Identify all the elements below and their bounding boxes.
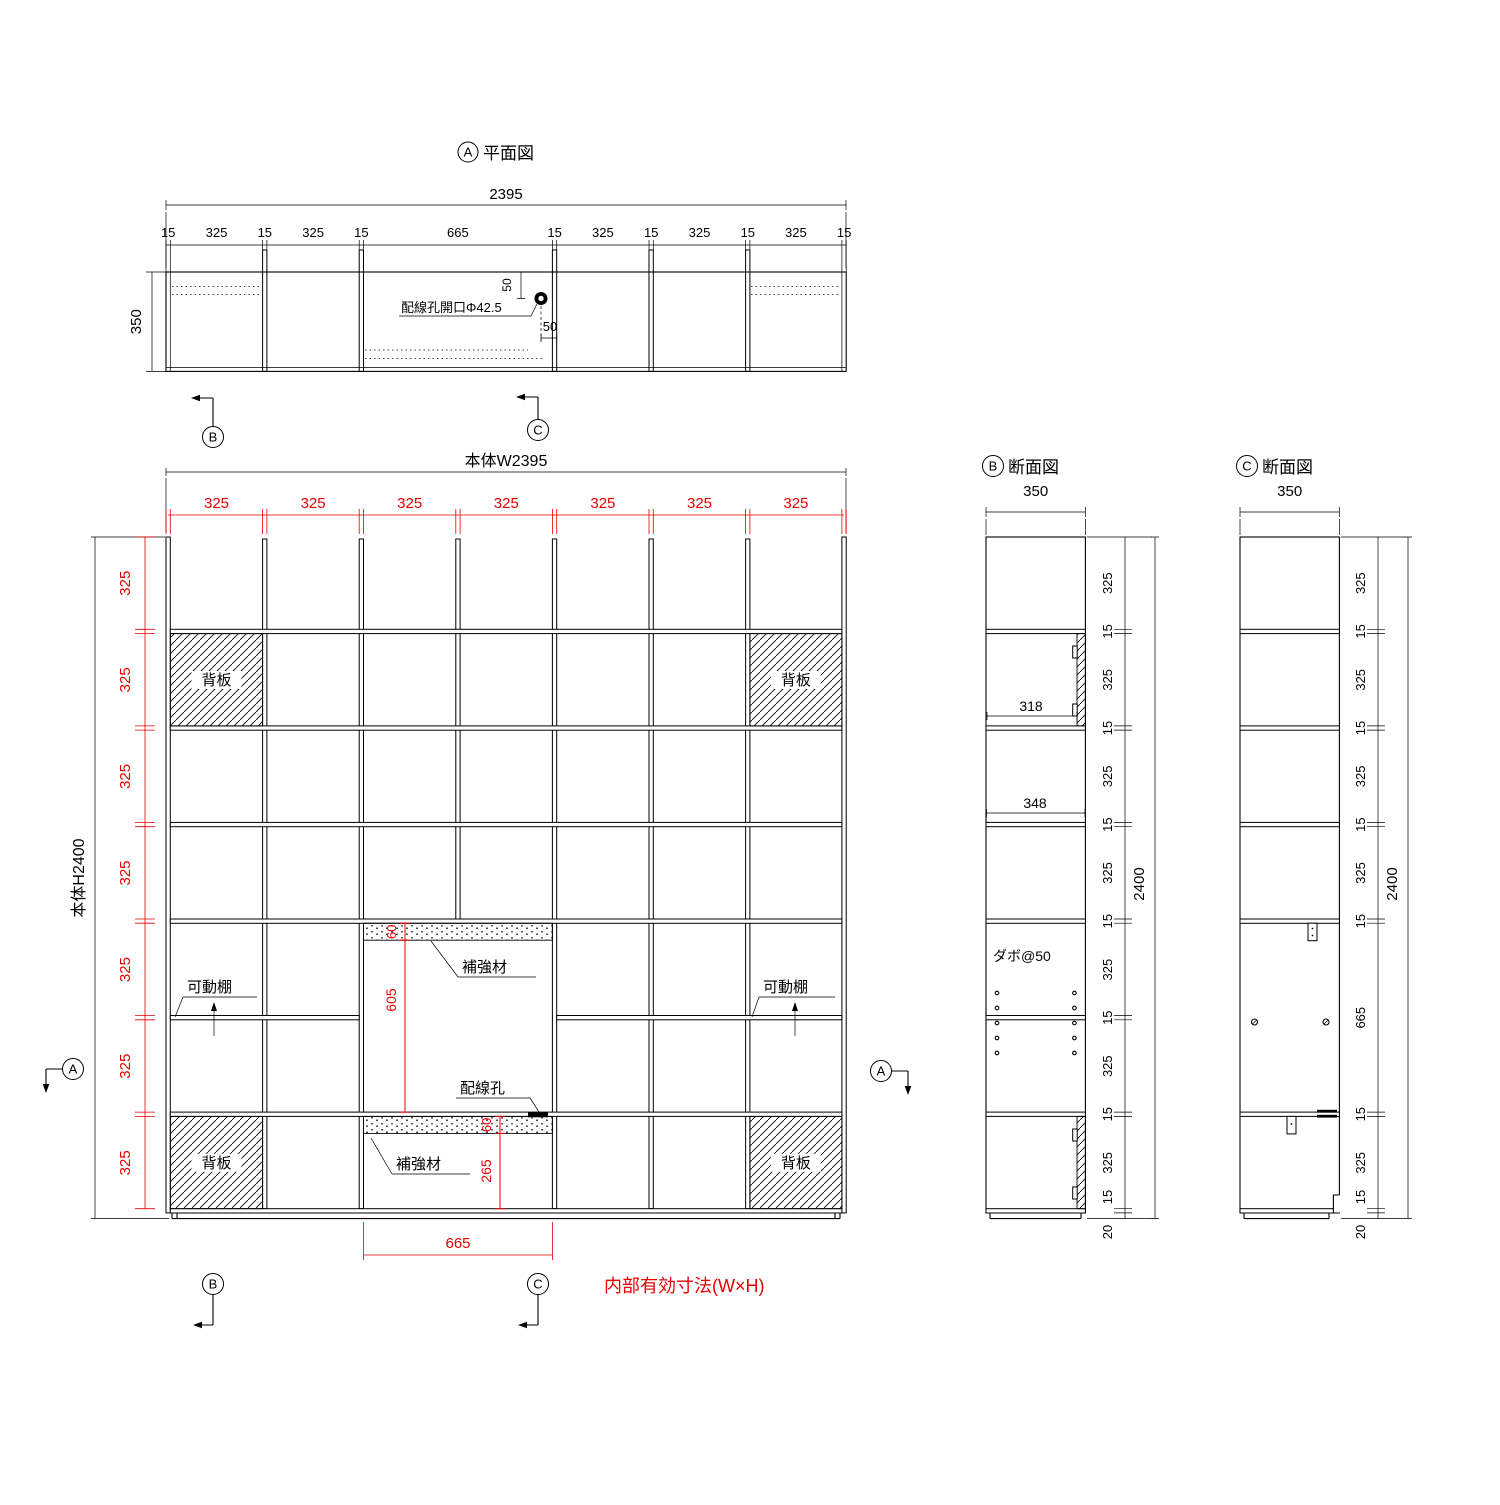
section-b-depth: 350 xyxy=(1023,483,1048,500)
plan-divider xyxy=(552,250,556,371)
plan-chain-dim: 15 xyxy=(354,225,368,240)
chain-dim: 325 xyxy=(1353,669,1368,691)
chain-dim: 15 xyxy=(1100,817,1115,831)
section-c-view: C 断面図 350 325 15 325 15 325 xyxy=(1237,456,1413,1240)
shelf-section xyxy=(986,1112,1085,1116)
movable-shelf-section xyxy=(986,1016,1085,1020)
screw-symbols xyxy=(1252,1019,1330,1025)
shelf-section xyxy=(1240,822,1339,826)
section-marker-line xyxy=(46,1069,63,1085)
chain-dim: 325 xyxy=(1100,1055,1115,1077)
chain-dim: 325 xyxy=(1353,1152,1368,1174)
bottom-clear-dim: 265 xyxy=(478,1159,494,1183)
plan-marker-letter: A xyxy=(464,145,473,160)
section-c-base xyxy=(1244,1213,1329,1219)
shelf-section xyxy=(986,629,1085,633)
divider xyxy=(552,539,556,1209)
section-b-total-dim-line xyxy=(1151,537,1159,1219)
elevation-section-marker-c: C xyxy=(518,1274,549,1329)
plan-chain-dim: 325 xyxy=(206,225,228,240)
elevation-width-label: 本体W2395 xyxy=(465,452,548,470)
plan-chain-dim: 15 xyxy=(547,225,561,240)
plan-chain-dim: 15 xyxy=(161,225,175,240)
bottom-panel-section xyxy=(1240,1209,1339,1213)
plan-section-marker-b: B xyxy=(191,395,224,448)
elevation-height-label: 本体H2400 xyxy=(70,838,88,917)
section-b-body: 318 348 ダボ@50 xyxy=(986,537,1085,1219)
section-c-depth: 350 xyxy=(1277,483,1302,500)
plan-divider xyxy=(746,250,750,371)
back-panel-label: 背板 xyxy=(201,671,231,689)
back-panel-section-hatch xyxy=(1077,634,1085,726)
chain-dim: 20 xyxy=(1353,1225,1368,1239)
chain-dim: 665 xyxy=(1353,1007,1368,1029)
plan-chain-dim: 325 xyxy=(592,225,614,240)
back-panel-label: 背板 xyxy=(781,671,811,689)
movable-shelf-left: 可動棚 xyxy=(175,979,257,1036)
plan-body xyxy=(166,250,846,371)
plan-hidden-reinforcement xyxy=(365,350,545,359)
wiring-hole-cut-icon xyxy=(528,1112,548,1117)
reinforcement-section xyxy=(1308,923,1317,941)
movable-shelf xyxy=(170,1016,359,1020)
plan-view: A 平面図 2395 15 325 15 325 15 665 15 325 1… xyxy=(128,142,851,448)
section-marker-letter: A xyxy=(877,1064,886,1079)
section-arrow-icon xyxy=(43,1084,50,1093)
elevation-body xyxy=(166,537,846,1219)
chain-dim: 15 xyxy=(1353,1190,1368,1204)
section-c-marker-letter: C xyxy=(1242,459,1251,474)
chain-dim: 325 xyxy=(1100,572,1115,594)
wiring-hole-center xyxy=(538,296,543,301)
chain-dim: 325 xyxy=(1100,959,1115,981)
reinforcement-label: 補強材 xyxy=(462,959,507,976)
shelf-section xyxy=(1240,919,1339,923)
reinf-top-dim: 60 xyxy=(384,925,399,939)
section-arrow-icon xyxy=(516,394,525,400)
plan-hole-offset-v: 50 xyxy=(500,278,514,292)
col-dim: 325 xyxy=(204,495,229,512)
chain-dim: 15 xyxy=(1100,914,1115,928)
opening-dim-lines xyxy=(400,923,410,1112)
elevation-row-dims: 325 325 325 325 325 325 325 xyxy=(117,537,155,1209)
cad-drawing-canvas: A 平面図 2395 15 325 15 325 15 665 15 325 1… xyxy=(0,0,1500,1500)
notch-erase xyxy=(1333,1195,1341,1213)
section-arrow-icon xyxy=(193,1322,202,1328)
row-dim: 325 xyxy=(117,667,134,692)
back-panel-hook xyxy=(1073,704,1078,716)
plan-hole-label: 配線孔開口Φ42.5 xyxy=(401,300,502,315)
adjust-arrow-icon xyxy=(211,1002,217,1011)
chain-dim: 15 xyxy=(1100,624,1115,638)
plan-chain-dim: 15 xyxy=(644,225,658,240)
opening-width-dim: 665 xyxy=(445,1235,470,1252)
movable-shelf-label: 可動棚 xyxy=(187,979,232,996)
elevation-section-marker-a-left: A xyxy=(43,1059,84,1094)
row-dim: 325 xyxy=(117,957,134,982)
reinforcement-band xyxy=(364,1116,553,1133)
back-panel-label: 背板 xyxy=(781,1154,811,1172)
fixed-shelf xyxy=(170,822,842,826)
back-panel-hook xyxy=(1073,1129,1078,1141)
movable-shelf-label: 可動棚 xyxy=(763,979,808,996)
base-plinth xyxy=(172,1213,840,1219)
chain-dim: 15 xyxy=(1353,1107,1368,1121)
movable-shelf-leader xyxy=(175,997,257,1017)
divider xyxy=(263,539,267,1209)
plan-divider xyxy=(359,250,363,371)
chain-dim: 325 xyxy=(1100,669,1115,691)
elevation-row-dim-lines xyxy=(135,537,155,1209)
divider xyxy=(649,539,653,1209)
reinforcement-section xyxy=(1287,1116,1296,1134)
chain-dim: 325 xyxy=(1353,862,1368,884)
plan-overall-width: 2395 xyxy=(489,186,522,203)
chain-dim: 15 xyxy=(1353,817,1368,831)
elevation-section-marker-a-right: A xyxy=(871,1061,912,1096)
section-b-chain: 325 15 325 15 325 15 325 15 325 15 325 1… xyxy=(1087,537,1159,1239)
shelf-section xyxy=(986,822,1085,826)
back-panel-hook xyxy=(1073,1187,1078,1199)
inner-depth-348: 348 xyxy=(1023,795,1047,811)
plan-title: 平面図 xyxy=(483,144,534,163)
elevation-view: 本体W2395 325 325 325 325 325 325 325 本体H2… xyxy=(43,452,912,1328)
fixed-shelf xyxy=(170,629,842,633)
section-marker-line xyxy=(199,1295,213,1326)
plan-depth-dim-lines xyxy=(146,272,166,371)
section-marker-line xyxy=(200,398,213,427)
plan-divider xyxy=(649,250,653,371)
side-panel xyxy=(842,537,846,1213)
opening-height-dim: 605 xyxy=(383,988,399,1012)
wiring-hole-leader xyxy=(456,1098,539,1112)
elevation-column-dim-lines xyxy=(166,509,846,534)
section-marker-line xyxy=(525,397,538,420)
col-dim: 325 xyxy=(494,495,519,512)
chain-dim: 325 xyxy=(1100,1152,1115,1174)
shelf-section xyxy=(986,919,1085,923)
fixed-shelf xyxy=(170,1112,842,1116)
divider xyxy=(746,539,750,1209)
chain-dim: 20 xyxy=(1100,1225,1115,1239)
plan-chain-dim: 15 xyxy=(258,225,272,240)
plan-chain-dim: 15 xyxy=(741,225,755,240)
col-dim: 325 xyxy=(397,495,422,512)
section-b-outline xyxy=(986,537,1085,1213)
chain-dim: 325 xyxy=(1100,766,1115,788)
adjust-arrow-icon xyxy=(792,1002,798,1011)
section-marker-line xyxy=(524,1295,538,1326)
bottom-panel xyxy=(170,1209,842,1213)
divider xyxy=(359,539,363,1209)
section-marker-letter: B xyxy=(209,1277,218,1292)
inner-dimension-note: 内部有効寸法(W×H) xyxy=(604,1276,765,1296)
section-c-title: 断面図 xyxy=(1262,458,1313,477)
chain-dim: 15 xyxy=(1353,624,1368,638)
plan-chain-dim: 15 xyxy=(837,225,851,240)
back-panel-hook xyxy=(1073,646,1078,658)
row-dim: 325 xyxy=(117,571,134,596)
dowel-label: ダボ@50 xyxy=(993,948,1051,964)
section-arrow-icon xyxy=(518,1322,527,1328)
plan-chain-dim: 325 xyxy=(785,225,807,240)
inner-depth-318: 318 xyxy=(1019,698,1043,714)
section-b-depth-dim-lines xyxy=(986,507,1085,535)
plan-hole-offset-h: 50 xyxy=(543,319,557,334)
section-b-base xyxy=(990,1213,1081,1219)
movable-shelf-right: 可動棚 xyxy=(752,979,835,1036)
elevation-section-marker-b: B xyxy=(193,1274,224,1329)
plan-chain-dim: 325 xyxy=(689,225,711,240)
row-dim: 325 xyxy=(117,860,134,885)
wiring-hole-section-icon xyxy=(1317,1110,1337,1113)
col-dim: 325 xyxy=(590,495,615,512)
chain-dim: 15 xyxy=(1353,721,1368,735)
section-marker-letter: C xyxy=(533,423,542,438)
wiring-hole-section-icon xyxy=(1317,1115,1337,1118)
reinf-bottom-dim: 60 xyxy=(479,1118,494,1132)
plan-depth: 350 xyxy=(128,309,145,334)
section-arrow-icon xyxy=(191,395,200,401)
fixed-shelf xyxy=(170,919,842,923)
fixed-shelf xyxy=(170,726,842,730)
elevation-column-dims: 325 325 325 325 325 325 325 xyxy=(166,495,846,534)
section-b-total-height: 2400 xyxy=(1131,867,1148,900)
back-panel-label: 背板 xyxy=(201,1154,231,1172)
section-marker-letter: C xyxy=(533,1277,542,1292)
section-c-depth-dim-lines xyxy=(1240,507,1339,535)
col-dim: 325 xyxy=(783,495,808,512)
section-marker-line xyxy=(892,1071,909,1087)
bottom-panel-section xyxy=(986,1209,1085,1213)
chain-dim: 325 xyxy=(1353,572,1368,594)
row-dim: 325 xyxy=(117,1150,134,1175)
row-dim: 325 xyxy=(117,1054,134,1079)
plan-chain-dim: 665 xyxy=(447,225,469,240)
movable-shelf xyxy=(557,1016,842,1020)
side-panel xyxy=(166,537,170,1213)
chain-dim: 15 xyxy=(1100,1190,1115,1204)
plan-section-marker-c: C xyxy=(516,394,549,441)
section-c-total-height: 2400 xyxy=(1384,867,1401,900)
col-dim: 325 xyxy=(687,495,712,512)
section-c-total-dim-line xyxy=(1404,537,1412,1219)
shelf-section xyxy=(1240,629,1339,633)
shelving-unit-drawing: A 平面図 2395 15 325 15 325 15 665 15 325 1… xyxy=(0,0,1500,1500)
divider-short xyxy=(456,539,460,923)
plan-hole-vert-dim-lines xyxy=(517,272,525,299)
section-c-chain: 325 15 325 15 325 15 325 15 665 15 325 1… xyxy=(1341,537,1412,1239)
section-marker-letter: B xyxy=(209,430,218,445)
chain-dim: 325 xyxy=(1100,862,1115,884)
plan-chain-dim-lines xyxy=(166,240,846,250)
chain-dim: 15 xyxy=(1100,721,1115,735)
plan-chain-dim: 325 xyxy=(302,225,324,240)
dowel-holes xyxy=(995,991,1076,1055)
chain-dim: 325 xyxy=(1353,766,1368,788)
col-dim: 325 xyxy=(301,495,326,512)
plan-divider xyxy=(263,250,267,371)
back-panel-section-hatch xyxy=(1077,1116,1085,1208)
shelf-section xyxy=(986,726,1085,730)
row-dim: 325 xyxy=(117,764,134,789)
section-b-view: B 断面図 350 318 348 ダボ@50 xyxy=(983,456,1160,1240)
chain-dim: 15 xyxy=(1100,1010,1115,1024)
reinforcement-label: 補強材 xyxy=(396,1156,441,1173)
chain-dim: 15 xyxy=(1353,914,1368,928)
plan-end-extensions xyxy=(166,250,846,272)
wiring-hole-label: 配線孔 xyxy=(460,1080,505,1097)
section-arrow-icon xyxy=(905,1086,912,1095)
section-b-title: 断面図 xyxy=(1008,458,1059,477)
section-c-body xyxy=(1240,537,1341,1219)
shelf-section xyxy=(1240,726,1339,730)
section-marker-letter: A xyxy=(69,1062,78,1077)
chain-dim: 15 xyxy=(1100,1107,1115,1121)
section-b-marker-letter: B xyxy=(989,459,998,474)
